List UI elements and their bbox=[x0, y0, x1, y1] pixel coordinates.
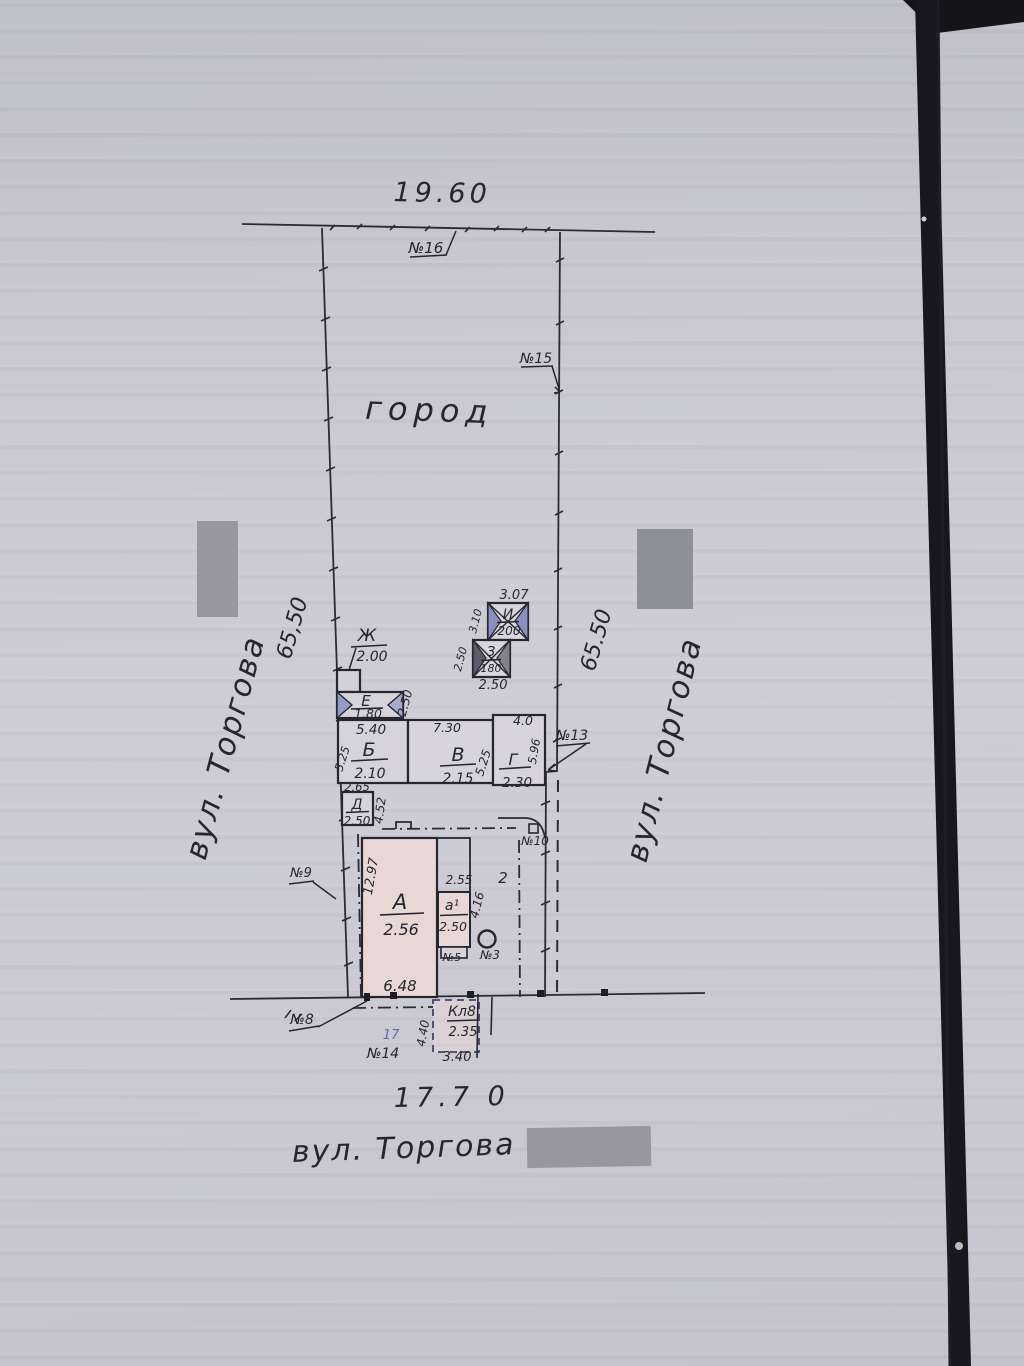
building-kl-dim-bottom: 3.40 bbox=[443, 1050, 472, 1065]
building-zh-shape bbox=[337, 670, 360, 692]
building-v-dim-top: 7.30 bbox=[433, 720, 461, 735]
redaction-box-right bbox=[637, 529, 693, 609]
site-plan-drawing: 19.60 №16 город №15 65,50 вул. Торгова 6… bbox=[0, 0, 1024, 1366]
building-kl-dim-side: 4.40 bbox=[414, 1019, 432, 1048]
building-z-letter: З bbox=[487, 645, 495, 660]
building-a1-letter: а¹ bbox=[445, 898, 459, 914]
marker-13: №13 bbox=[555, 728, 588, 744]
marker10-square bbox=[529, 824, 538, 833]
building-kl-letter: Кл8 bbox=[448, 1004, 476, 1020]
building-b-dim-top: 5.40 bbox=[356, 722, 386, 738]
building-g-dim-top: 4.0 bbox=[513, 713, 533, 728]
well-circle bbox=[479, 931, 496, 948]
redaction-box-left bbox=[197, 521, 238, 617]
building-z-dim-bottom: 2.50 bbox=[479, 678, 508, 693]
building-a-dim-front: 6.48 bbox=[383, 977, 416, 995]
building-a1-dim-top: 2.55 bbox=[446, 873, 473, 887]
building-d-letter: Д bbox=[351, 797, 363, 813]
building-kl-value: 2.35 bbox=[449, 1025, 478, 1040]
building-outlines bbox=[337, 603, 545, 1058]
marker-10: №10 bbox=[520, 834, 549, 848]
left-side-length: 65,50 bbox=[272, 594, 313, 661]
building-zh-letter: Ж bbox=[357, 626, 377, 646]
building-i-dim-top: 3.07 bbox=[500, 588, 530, 603]
marker-15: №15 bbox=[519, 351, 552, 367]
building-d-dim-top: 2.65 bbox=[344, 780, 370, 794]
right-side-length: 65.50 bbox=[576, 606, 617, 673]
marker-9: №9 bbox=[289, 866, 312, 881]
section-mark: 2 bbox=[498, 869, 508, 887]
scan-edge-band bbox=[903, 0, 1024, 1366]
marker-14: №14 bbox=[366, 1046, 399, 1062]
building-i-dim-side: 3.10 bbox=[466, 608, 485, 635]
marker-5: №5 bbox=[442, 951, 461, 964]
building-d-dim-side: 4.52 bbox=[371, 796, 389, 824]
bottom-dimension: 17.7 0 bbox=[394, 1081, 510, 1114]
right-street-name: вул. Торгова bbox=[619, 634, 710, 866]
marker-3: №3 bbox=[479, 948, 500, 962]
garden-label: город bbox=[365, 389, 495, 431]
building-b-letter: Б bbox=[362, 739, 375, 761]
marker-14-blue: 17 bbox=[383, 1028, 400, 1043]
left-street-name: вул. Торгова bbox=[178, 632, 272, 864]
scanned-plan-page: 19.60 №16 город №15 65,50 вул. Торгова 6… bbox=[0, 0, 1024, 1366]
building-g-letter: Г bbox=[509, 750, 519, 769]
building-v-value: 2.15 bbox=[442, 771, 473, 787]
building-v-letter: В bbox=[451, 744, 464, 766]
bottom-street-name: вул. Торгова bbox=[291, 1127, 516, 1170]
building-i-letter: И bbox=[503, 607, 514, 623]
redaction-box-bottom bbox=[527, 1126, 652, 1168]
building-a-value: 2.56 bbox=[383, 920, 419, 939]
building-a-letter: А bbox=[391, 890, 407, 914]
marker-8: №8 bbox=[289, 1012, 314, 1028]
building-a1-value: 2.50 bbox=[439, 919, 467, 934]
marker-16: №16 bbox=[408, 239, 444, 257]
building-g-value: 2.30 bbox=[502, 775, 532, 791]
building-z-dim-side: 2.50 bbox=[451, 646, 470, 673]
building-z-value: 180 bbox=[481, 662, 502, 675]
building-i-value: 200 bbox=[498, 624, 521, 638]
building-zh-value: 2.00 bbox=[356, 649, 387, 665]
redaction-boxes bbox=[197, 521, 693, 1168]
building-d-value: 2.50 bbox=[344, 814, 371, 828]
top-dimension: 19.60 bbox=[393, 177, 491, 210]
building-e-value: 1.80 bbox=[354, 706, 382, 721]
